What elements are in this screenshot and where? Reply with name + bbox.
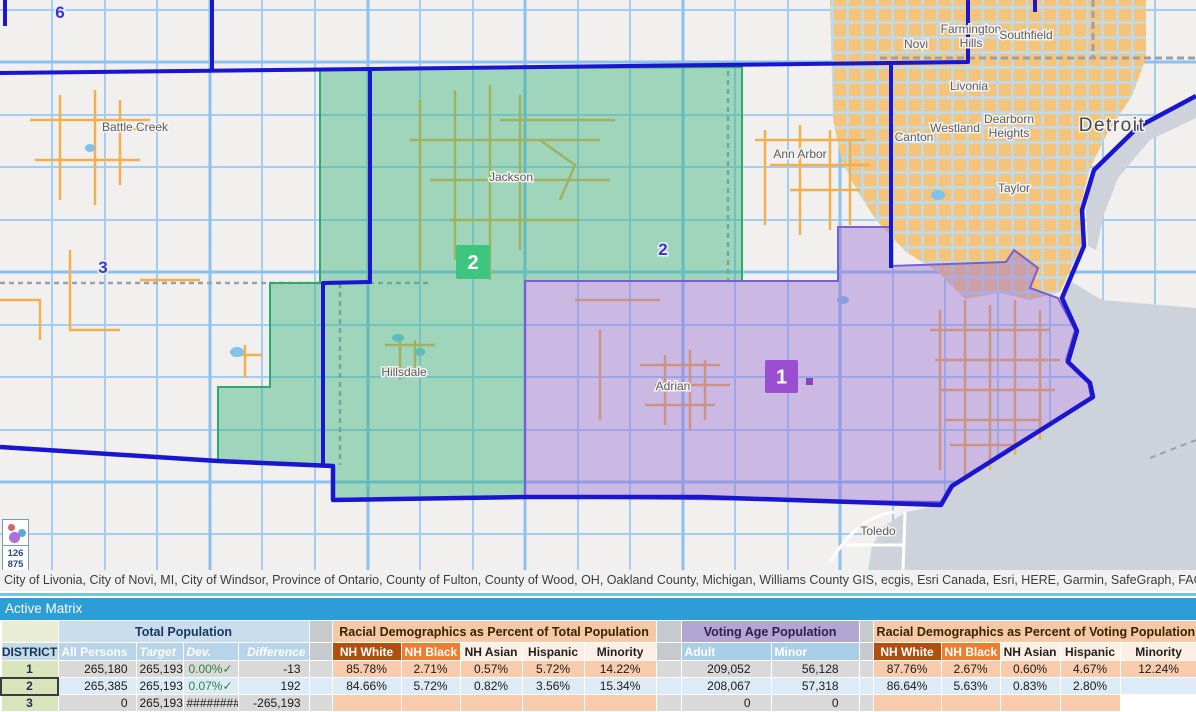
matrix-col-header: Target [136, 643, 183, 661]
city-label: Battle Creek [102, 120, 169, 134]
matrix-col-header: All Persons [58, 643, 136, 661]
matrix-col-header: NH Asian [1000, 643, 1060, 661]
district-number-label: 6 [55, 3, 64, 22]
matrix-cell: 0.82% [460, 678, 522, 695]
matrix-cell: 0 [58, 695, 136, 712]
matrix-cell: 57,318 [771, 678, 859, 695]
matrix-cell: 265,193 [136, 661, 183, 678]
city-label: Ann Arbor [773, 147, 826, 161]
matrix-gap-cell [309, 661, 332, 678]
redistricting-app: 21 Battle CreekJacksonAnn ArborHillsdale… [0, 0, 1196, 712]
matrix-cell [522, 695, 584, 712]
district-number-label: 3 [98, 258, 107, 277]
matrix-cell: 5.63% [941, 678, 1000, 695]
matrix-cell: 0.60% [1000, 661, 1060, 678]
matrix-col-header: Adult [681, 643, 771, 661]
matrix-cell: 2.67% [941, 661, 1000, 678]
matrix-col-header: NH Black [941, 643, 1000, 661]
marker-dot [806, 378, 813, 385]
matrix-cell [1060, 695, 1120, 712]
city-label: Westland [930, 121, 980, 135]
district-marker-number: 1 [776, 367, 787, 389]
matrix-group-header: Total Population [58, 621, 309, 643]
district-marker-number: 2 [467, 252, 478, 274]
matrix-col-header: NH White [332, 643, 401, 661]
matrix-cell: ######## [183, 695, 238, 712]
matrix-gap-cell [656, 643, 681, 661]
city-label: Canton [895, 130, 934, 144]
matrix-group-header: Voting Age Population [681, 621, 859, 643]
active-matrix-title: Active Matrix [5, 601, 82, 616]
matrix-cell: 5.72% [522, 661, 584, 678]
map-canvas[interactable]: 21 Battle CreekJacksonAnn ArborHillsdale… [0, 0, 1196, 570]
matrix-col-header: Hispanic [522, 643, 584, 661]
matrix-gap-cell [859, 661, 873, 678]
matrix-cell [941, 695, 1000, 712]
city-label: Detroit [1079, 115, 1145, 136]
matrix-cell: -265,193 [238, 695, 309, 712]
matrix-district-header: DISTRICT [1, 643, 58, 661]
matrix-cell: 85.78% [332, 661, 401, 678]
matrix-cell: 0 [681, 695, 771, 712]
matrix-cell [1120, 695, 1196, 712]
matrix-cell: 265,385 [58, 678, 136, 695]
matrix-cell: 3.56% [522, 678, 584, 695]
matrix-cell: 87.76% [873, 661, 941, 678]
matrix-cell [584, 695, 656, 712]
city-label: Hillsdale [381, 365, 427, 379]
matrix-cell: 5.72% [401, 678, 460, 695]
matrix-cell: 0.00%✓ [183, 661, 238, 678]
matrix-cell: 86.64% [873, 678, 941, 695]
city-label: Livonia [950, 79, 988, 93]
city-label: Farmington [941, 22, 1002, 36]
district-dot-purple-icon [9, 532, 20, 543]
matrix-gap-cell [309, 695, 332, 712]
matrix-gap-cell [656, 695, 681, 712]
city-label: Jackson [489, 170, 533, 184]
matrix-cell: 15.34% [584, 678, 656, 695]
matrix-corner-cell [1, 621, 58, 643]
matrix-cell [401, 695, 460, 712]
matrix-col-header: Dev. [183, 643, 238, 661]
matrix-cell: 4.67% [1060, 661, 1120, 678]
matrix-gap-cell [859, 643, 873, 661]
matrix-cell: 192 [238, 678, 309, 695]
matrix-cell: 56,128 [771, 661, 859, 678]
city-label: Taylor [998, 181, 1030, 195]
matrix-district-cell[interactable]: 2 [1, 678, 58, 695]
city-label: Hills [960, 36, 983, 50]
matrix-cell [1120, 678, 1196, 695]
matrix-cell: 0 [771, 695, 859, 712]
matrix-gap-cell [656, 661, 681, 678]
matrix-cell: 0.07%✓ [183, 678, 238, 695]
matrix-col-header: Hispanic [1060, 643, 1120, 661]
matrix-cell: 2.80% [1060, 678, 1120, 695]
matrix-gap-cell [859, 621, 873, 643]
district-number-label: 2 [658, 240, 667, 259]
matrix-district-cell[interactable]: 1 [1, 661, 58, 678]
matrix-cell: 0.57% [460, 661, 522, 678]
matrix-col-header: Difference [238, 643, 309, 661]
matrix-cell: 12.24% [1120, 661, 1196, 678]
matrix-gap-cell [656, 678, 681, 695]
cluster-widget[interactable]: 126 875 [2, 519, 29, 570]
city-label: Heights [989, 126, 1030, 140]
matrix-col-header: Minority [584, 643, 656, 661]
cluster-dots-box[interactable] [2, 519, 29, 546]
matrix-cell [873, 695, 941, 712]
map-attribution: City of Livonia, City of Novi, MI, City … [0, 570, 1196, 591]
matrix-cell: -13 [238, 661, 309, 678]
map-viewport[interactable]: 21 Battle CreekJacksonAnn ArborHillsdale… [0, 0, 1196, 570]
city-label: Dearborn [984, 112, 1034, 126]
cluster-counts-box[interactable]: 126 875 [2, 545, 29, 570]
matrix-gap-cell [309, 678, 332, 695]
matrix-cell [460, 695, 522, 712]
matrix-cell: 0.83% [1000, 678, 1060, 695]
matrix-cell [332, 695, 401, 712]
matrix-cell: 209,052 [681, 661, 771, 678]
matrix-cell: 265,193 [136, 695, 183, 712]
matrix-gap-cell [656, 621, 681, 643]
active-matrix-table: Total PopulationRacial Demographics as P… [0, 620, 1196, 712]
matrix-gap-cell [859, 695, 873, 712]
matrix-cell: 14.22% [584, 661, 656, 678]
matrix-cell: 265,180 [58, 661, 136, 678]
matrix-gap-cell [309, 643, 332, 661]
matrix-cell: 84.66% [332, 678, 401, 695]
matrix-group-header: Racial Demographics as Percent of Total … [332, 621, 656, 643]
city-label: Southfield [999, 28, 1052, 42]
matrix-gap-cell [309, 621, 332, 643]
city-label: Adrian [656, 379, 691, 393]
matrix-col-header: NH Black [401, 643, 460, 661]
matrix-cell: 208,067 [681, 678, 771, 695]
matrix-cell: 2.71% [401, 661, 460, 678]
district-dot-red-icon [8, 524, 15, 531]
active-matrix-header: Active Matrix [0, 598, 1196, 620]
matrix-col-header: Minor [771, 643, 859, 661]
panel-divider [0, 591, 1196, 598]
cluster-count-top: 126 [3, 548, 28, 559]
city-label: Toledo [860, 524, 896, 538]
matrix-grid: Total PopulationRacial Demographics as P… [0, 620, 1196, 712]
matrix-district-cell[interactable]: 3 [1, 695, 58, 712]
matrix-cell [1000, 695, 1060, 712]
matrix-gap-cell [859, 678, 873, 695]
matrix-group-header: Racial Demographics as Percent of Voting… [873, 621, 1196, 643]
city-label: Novi [904, 37, 928, 51]
matrix-col-header: NH White [873, 643, 941, 661]
matrix-col-header: NH Asian [460, 643, 522, 661]
cluster-count-bottom: 875 [3, 559, 28, 570]
matrix-col-header: Minority [1120, 643, 1196, 661]
matrix-cell: 265,193 [136, 678, 183, 695]
